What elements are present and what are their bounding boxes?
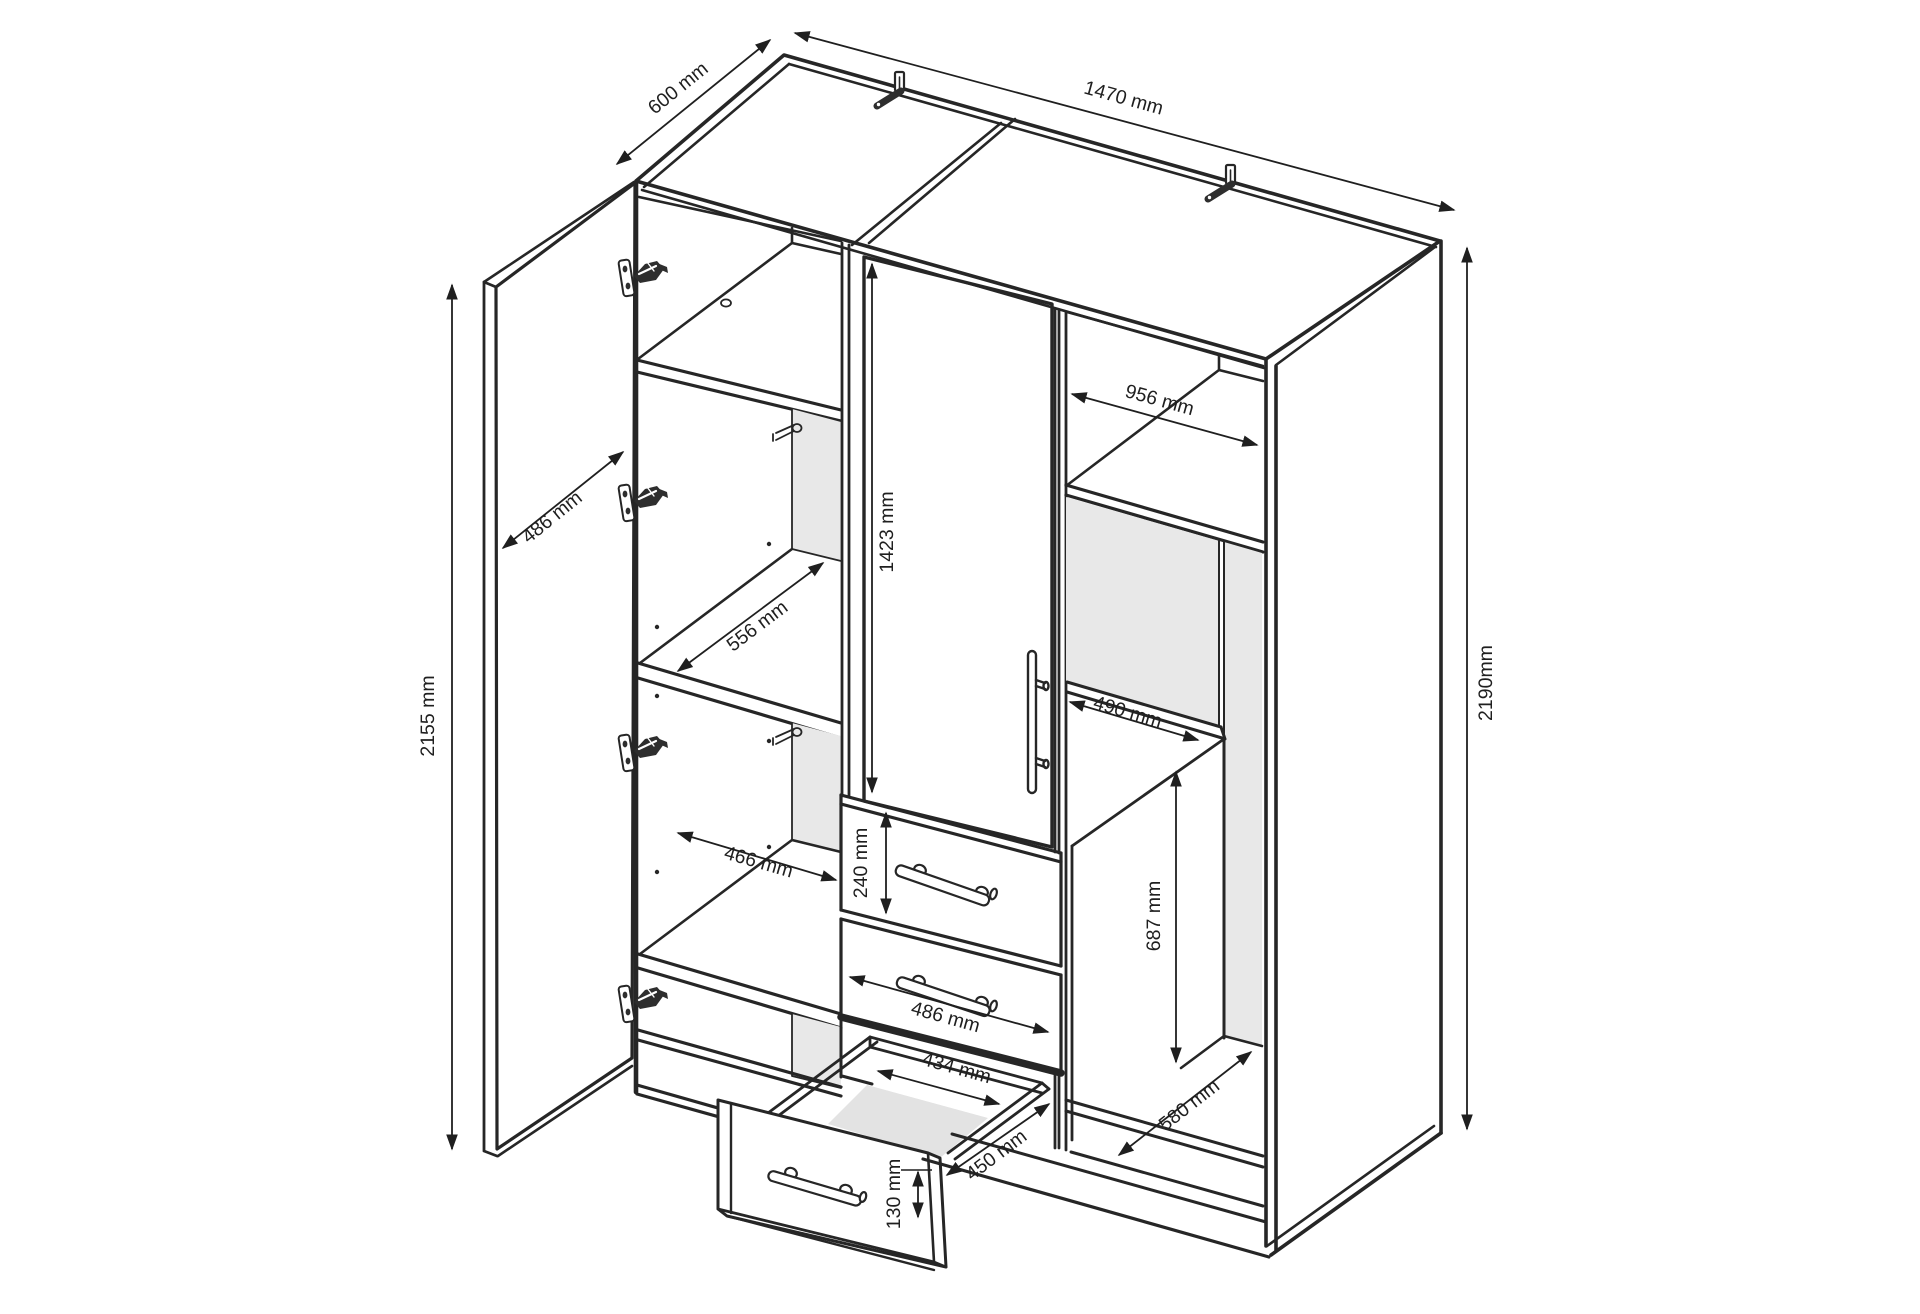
svg-text:687 mm: 687 mm [1143, 881, 1165, 951]
svg-text:580 mm: 580 mm [1155, 1075, 1224, 1136]
svg-text:556 mm: 556 mm [723, 596, 793, 656]
svg-text:240 mm: 240 mm [850, 828, 872, 898]
svg-text:2155 mm: 2155 mm [417, 675, 439, 756]
svg-text:1423 mm: 1423 mm [876, 491, 898, 572]
svg-text:130 mm: 130 mm [883, 1159, 905, 1229]
svg-text:600 mm: 600 mm [644, 58, 713, 119]
svg-text:466 mm: 466 mm [722, 842, 796, 883]
svg-text:2190mm: 2190mm [1475, 645, 1497, 721]
svg-text:486 mm: 486 mm [518, 487, 587, 548]
